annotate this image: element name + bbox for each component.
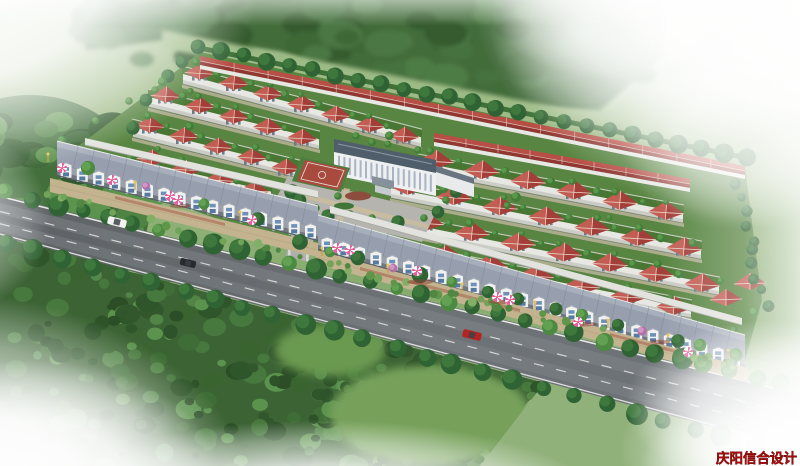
svg-text:庆阳信合设计: 庆阳信合设计 (716, 450, 797, 466)
